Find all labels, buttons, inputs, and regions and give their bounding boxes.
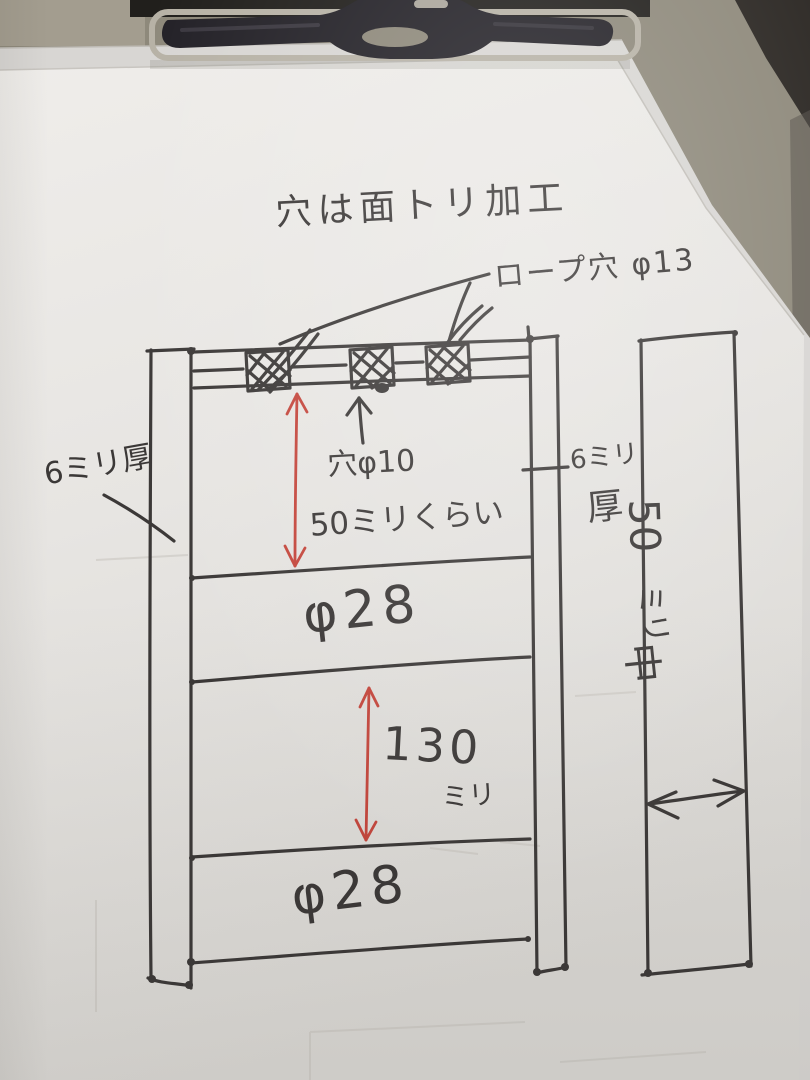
label-bar-width-value: 50: [619, 498, 670, 553]
clip-shadow: [150, 60, 630, 69]
label-middle-rail-dia: φ28: [300, 574, 424, 646]
clipboard-photo: 穴は面トリ加工 ロープ穴 φ13 6ミリ厚 穴φ10 50ミリくらい 6ミリ 厚…: [0, 0, 810, 1080]
label-right-thickness-top: 6ミリ: [568, 433, 640, 477]
sketch-svg: [0, 0, 810, 1080]
label-gap-value: 130: [381, 716, 484, 775]
label-bar-width-kanji: 中: [614, 640, 676, 686]
label-hole-dia: 穴φ10: [326, 435, 416, 484]
clip-hook-icon: [414, 0, 448, 8]
clipboard-top-left: [0, 0, 145, 46]
clip-arch-gap: [362, 27, 428, 47]
label-gap-unit: ミリ: [440, 772, 497, 815]
